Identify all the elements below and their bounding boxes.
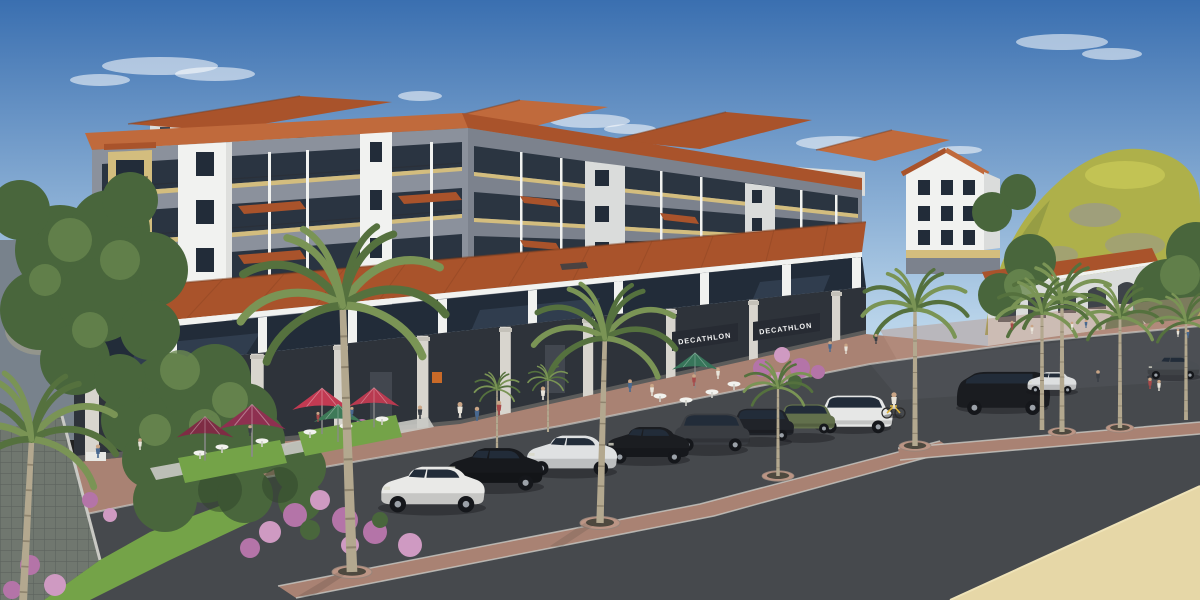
- cafe-counter: [86, 452, 106, 461]
- orange-poster: [432, 372, 442, 383]
- render-canvas: DECATHLON DECATHLON: [0, 0, 1200, 600]
- gable-house-windows: [918, 180, 975, 245]
- architectural-rendering: DECATHLON DECATHLON: [0, 0, 1200, 600]
